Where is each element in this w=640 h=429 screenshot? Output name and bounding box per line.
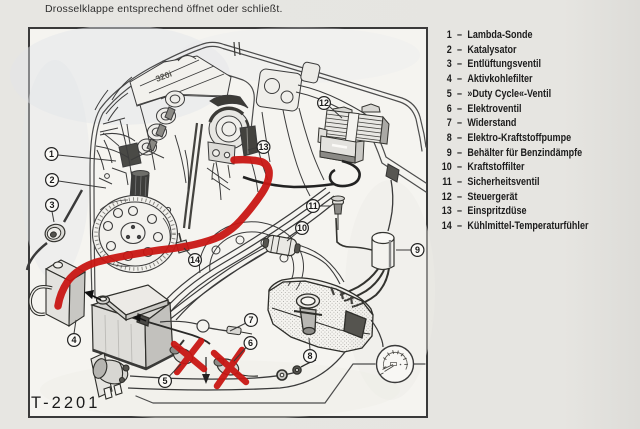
svg-text:2: 2 [49,175,54,185]
svg-text:10: 10 [297,223,307,233]
svg-text:9: 9 [415,245,420,255]
svg-text:1: 1 [49,149,54,159]
svg-text:3: 3 [49,200,54,210]
svg-text:4: 4 [71,335,76,345]
svg-text:11: 11 [308,201,318,211]
svg-text:8: 8 [307,351,312,361]
svg-text:6: 6 [248,338,253,348]
svg-text:12: 12 [319,98,329,108]
svg-text:13: 13 [258,142,268,152]
svg-text:14: 14 [190,255,200,265]
svg-text:5: 5 [162,376,167,386]
svg-text:7: 7 [248,315,253,325]
